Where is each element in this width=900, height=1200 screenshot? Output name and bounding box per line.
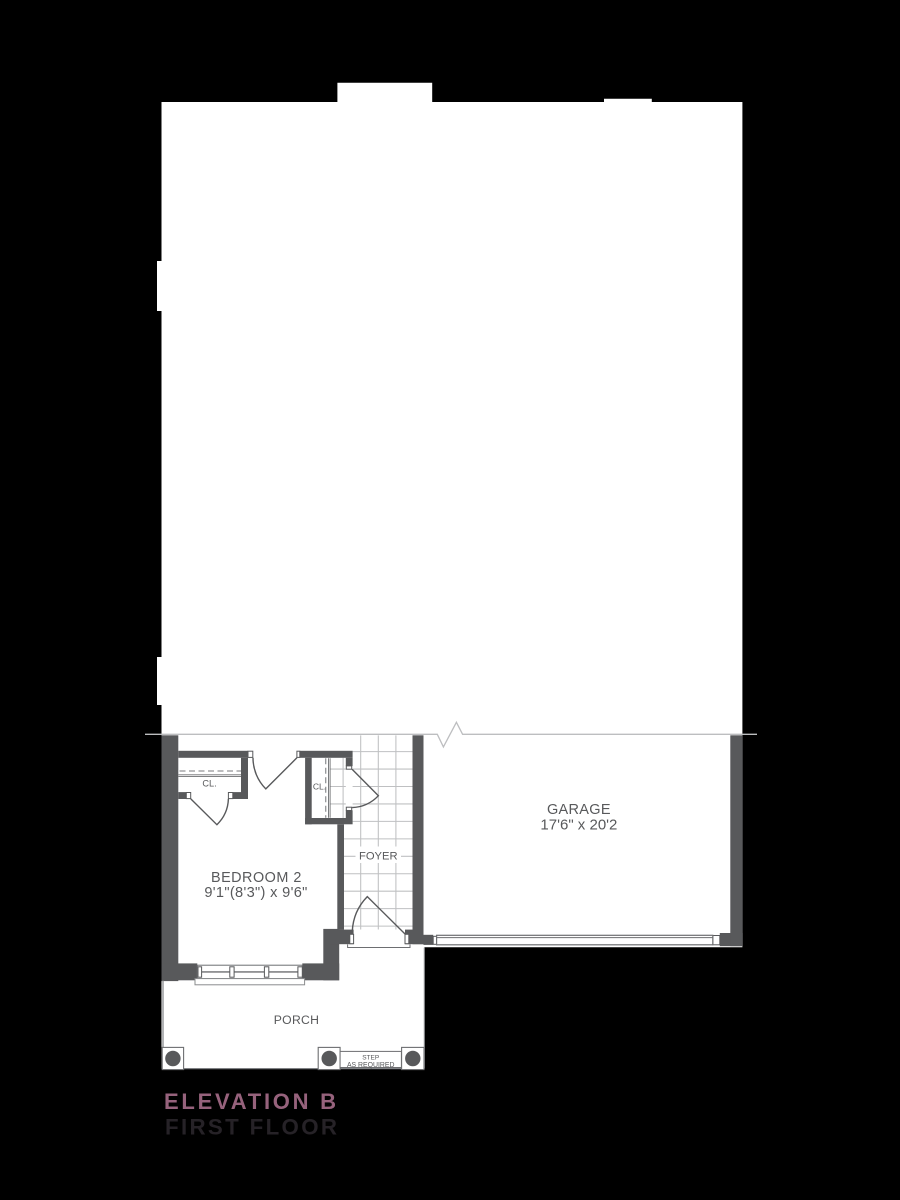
- svg-text:FIRST FLOOR: FIRST FLOOR: [165, 1115, 337, 1140]
- svg-text:AS REQUIRED: AS REQUIRED: [347, 1062, 395, 1069]
- svg-text:17'6" x 20'2: 17'6" x 20'2: [540, 816, 617, 833]
- svg-text:PORCH: PORCH: [274, 1013, 320, 1027]
- svg-text:BEDROOM 2: BEDROOM 2: [211, 870, 302, 886]
- svg-text:CL.: CL.: [313, 781, 326, 791]
- svg-text:9'1"(8'3") x 9'6": 9'1"(8'3") x 9'6": [204, 885, 307, 901]
- svg-text:FOYER: FOYER: [359, 850, 398, 862]
- svg-text:STEP: STEP: [362, 1055, 379, 1062]
- svg-text:CL.: CL.: [202, 779, 216, 789]
